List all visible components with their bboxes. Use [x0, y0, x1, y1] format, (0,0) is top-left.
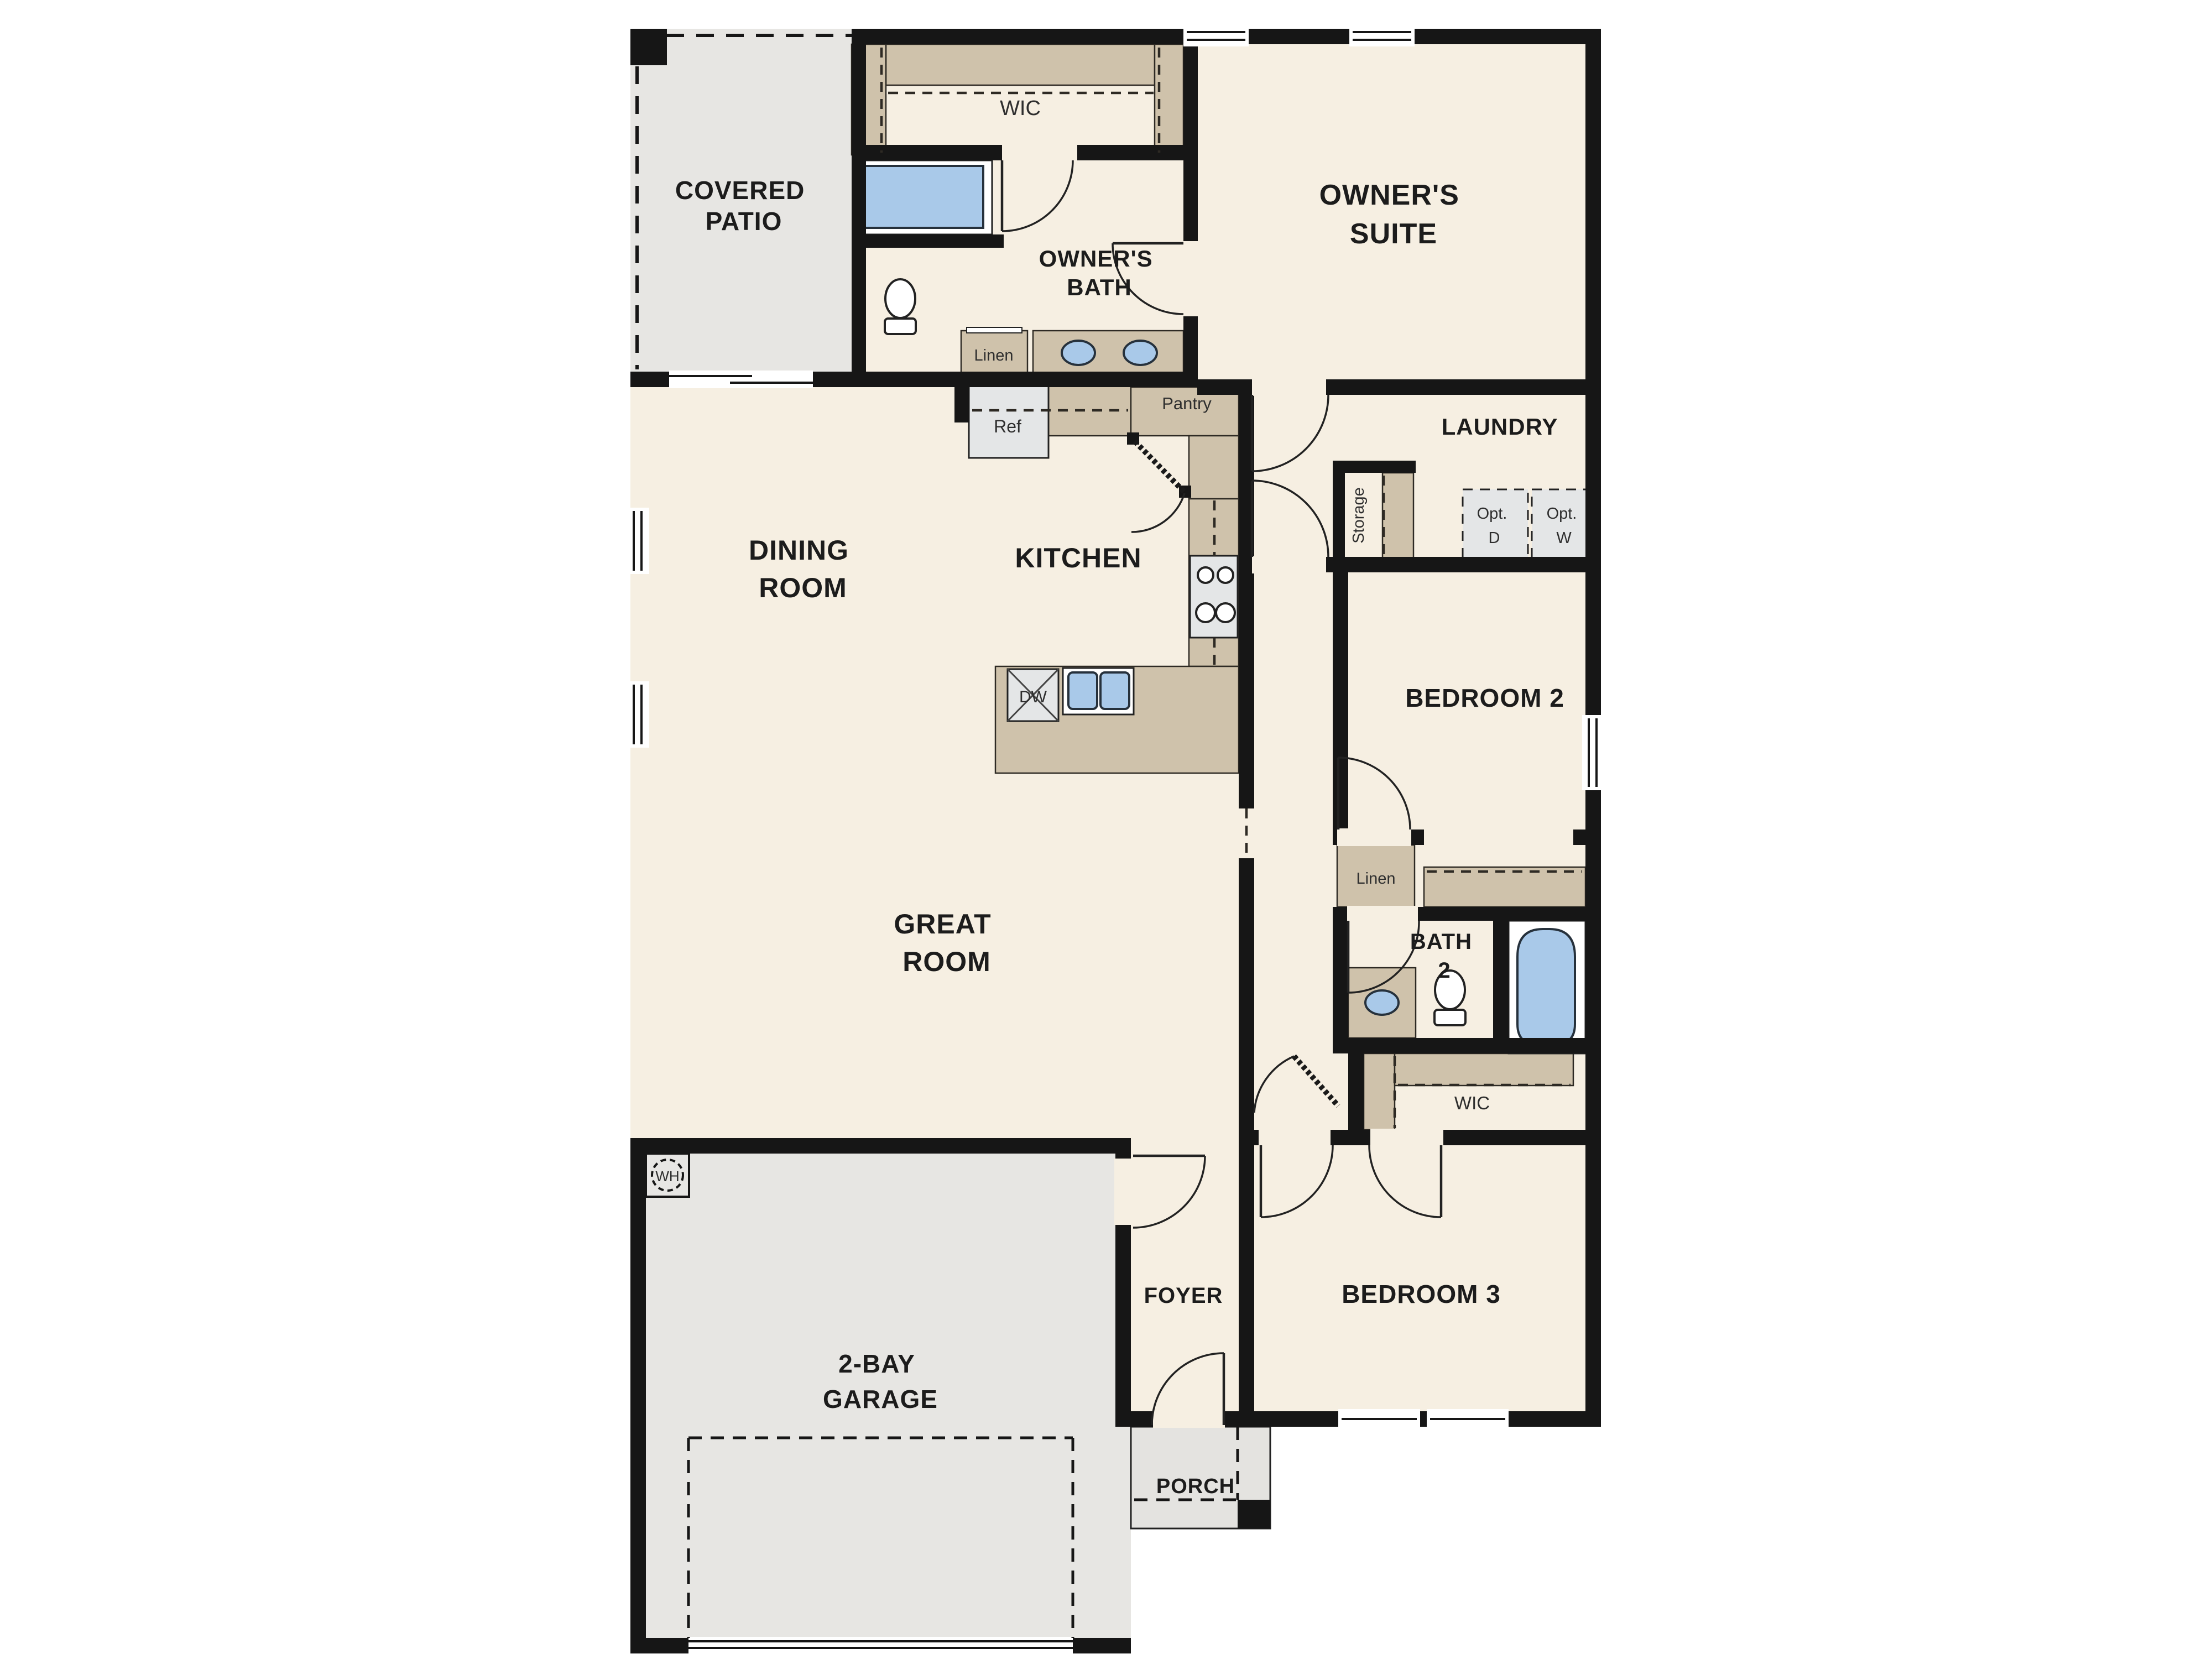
room-label-bedroom2: BEDROOM 2	[1405, 684, 1564, 712]
label-dw: DW	[1019, 688, 1047, 706]
kitchen-sink-icon-2	[1100, 672, 1129, 709]
bath2-sink-icon	[1365, 990, 1399, 1015]
window	[1349, 25, 1415, 46]
sink-icon-2	[1124, 341, 1157, 365]
room-label-porch: PORCH	[1156, 1475, 1235, 1498]
sink-icon	[1062, 341, 1095, 365]
toilet-icon	[885, 279, 915, 318]
label-storage: Storage	[1350, 487, 1368, 544]
label-wh: WH	[655, 1168, 679, 1185]
floor-plan: COVERED PATIO WIC OWNER'S BATH OWNER'S S…	[0, 0, 2212, 1659]
window	[1582, 715, 1605, 790]
label-pantry: Pantry	[1162, 394, 1212, 413]
optional-dryer-box	[1463, 489, 1528, 561]
room-label-wic-lower: WIC	[1454, 1093, 1490, 1113]
label-linen-hall: Linen	[1357, 870, 1396, 888]
kitchen-sink-icon	[1068, 672, 1097, 709]
room-label-wic-top: WIC	[1000, 97, 1041, 120]
label-ref: Ref	[994, 416, 1021, 436]
pantry-counter-side	[1189, 436, 1239, 499]
floor-plan-page: COVERED PATIO WIC OWNER'S BATH OWNER'S S…	[0, 0, 2212, 1659]
owners-bath-vanity	[1033, 331, 1183, 375]
room-label-laundry: LAUNDRY	[1442, 414, 1558, 440]
wic-shelf	[886, 44, 1155, 85]
bathtub-icon	[1517, 929, 1575, 1045]
bedroom2-closet-shelf	[1424, 867, 1585, 907]
porch-post	[1238, 1500, 1270, 1528]
window	[627, 508, 649, 574]
shower-icon	[864, 166, 983, 228]
label-linen-owners: Linen	[974, 347, 1014, 364]
room-label-bedroom3: BEDROOM 3	[1342, 1280, 1501, 1308]
storage-shelf	[1383, 473, 1413, 559]
wic-lower-shelf-top	[1395, 1053, 1573, 1086]
window	[627, 681, 649, 748]
patio-sliding-door	[669, 371, 813, 388]
wic-lower-shelf-left	[1364, 1053, 1395, 1130]
room-label-kitchen: KITCHEN	[1015, 542, 1141, 573]
room-label-foyer: FOYER	[1144, 1284, 1223, 1308]
window	[1183, 25, 1249, 46]
